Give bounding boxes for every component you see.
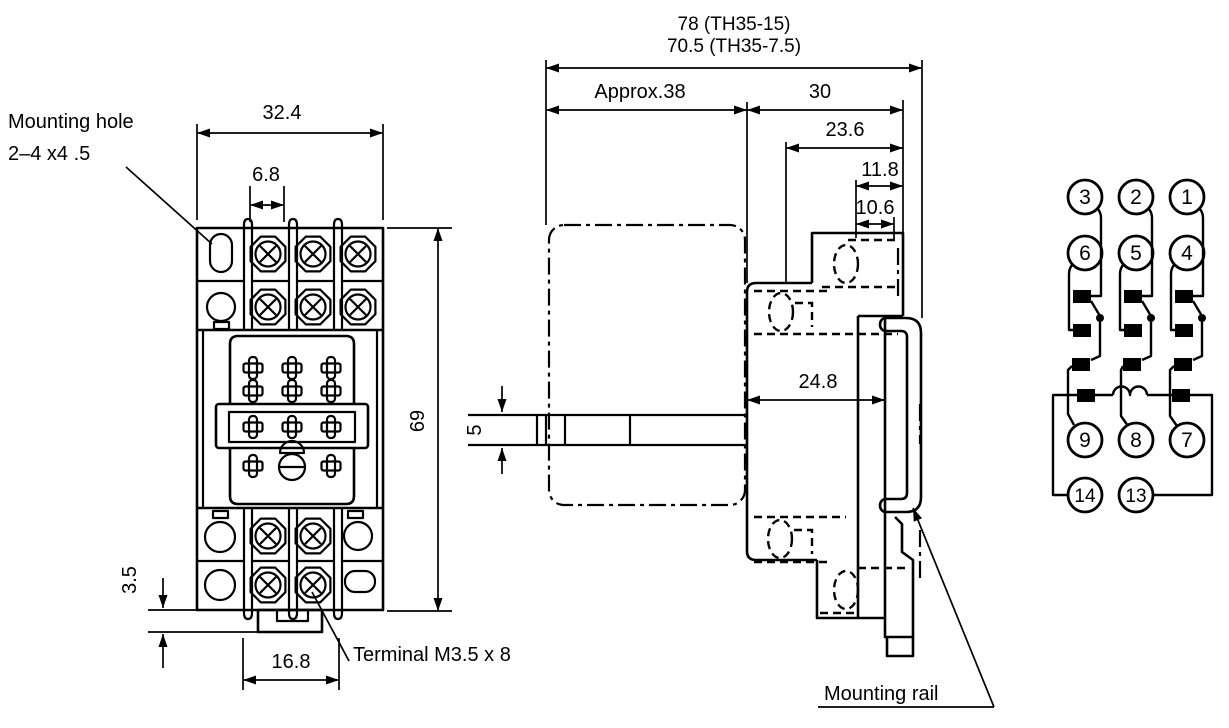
- wire-top-to-nc: [1193, 208, 1203, 296]
- plate-dividers: [537, 415, 630, 445]
- pin-hole: [283, 416, 302, 438]
- wire-pivot-to-common: [1142, 322, 1151, 360]
- mounting-hole-label-line2: 2–4 x4 .5: [8, 143, 90, 165]
- pin-hole: [322, 380, 341, 402]
- pin-hole: [283, 380, 302, 402]
- round-hole: [205, 570, 235, 600]
- pin-hole: [244, 357, 263, 379]
- round-hole: [207, 293, 235, 321]
- small-notch: [214, 322, 229, 329]
- contact-common: [1174, 358, 1192, 371]
- contact-nc: [1124, 290, 1142, 303]
- pivot-dot: [1147, 314, 1155, 322]
- oval-hole: [345, 571, 375, 592]
- pin-hole: [322, 357, 341, 379]
- contact-no: [1073, 324, 1091, 337]
- socket-front-face: [747, 283, 817, 560]
- dim-pitch-ext: [250, 186, 284, 222]
- side-view: 78 (TH35-15) 70.5 (TH35-7.5) Approx.38 3…: [464, 14, 994, 707]
- hidden-terminal-lines: [754, 517, 846, 562]
- coil-terminal-blade: [1077, 389, 1095, 402]
- contact-no: [1175, 324, 1193, 337]
- pin-number: 5: [1130, 242, 1142, 265]
- contact-no: [1124, 324, 1142, 337]
- screw-terminal: [251, 237, 286, 272]
- pin-number: 1: [1181, 186, 1193, 209]
- pivot-dot: [1096, 314, 1104, 322]
- dim-inner-width-text: 24.8: [799, 371, 838, 393]
- pin-number: 3: [1079, 186, 1091, 209]
- dim-bottom-offset-ext: [148, 610, 258, 632]
- pin-hole: [322, 455, 341, 477]
- round-hole: [205, 522, 235, 552]
- wire-pivot-to-common: [1193, 322, 1202, 360]
- technical-drawing-page: Mounting hole 2–4 x4 .5 32.4 6.8 69 3.5 …: [0, 0, 1229, 728]
- hidden-terminal-ellipse: [834, 571, 858, 609]
- armature: [1193, 301, 1202, 316]
- pin-number: 9: [1079, 429, 1091, 452]
- dim-socket-depth-text: 30: [809, 81, 831, 103]
- rail-label: Mounting rail: [824, 683, 939, 705]
- dim-height-text: 69: [407, 410, 429, 432]
- rail-outer: [886, 318, 921, 512]
- mounting-hole-leader: [126, 167, 212, 244]
- small-tab: [213, 511, 228, 518]
- coil-terminal-blade: [1172, 389, 1190, 402]
- front-view: Mounting hole 2–4 x4 .5 32.4 6.8 69 3.5 …: [8, 102, 511, 690]
- armature: [1091, 301, 1100, 316]
- contact-nc: [1175, 290, 1193, 303]
- screw-terminal: [296, 237, 331, 272]
- armature: [1142, 301, 1151, 316]
- hidden-terminal-lines: [820, 568, 908, 613]
- relay-socket-drawing: Mounting hole 2–4 x4 .5 32.4 6.8 69 3.5 …: [0, 0, 1229, 728]
- pin-hole: [283, 357, 302, 379]
- relay-plate: [468, 415, 747, 445]
- small-tab: [348, 511, 363, 518]
- terminal-label: Terminal M3.5 x 8: [353, 644, 511, 666]
- screw-terminal: [341, 237, 376, 272]
- mounting-hole-label-line1: Mounting hole: [8, 111, 134, 133]
- relay-body-phantom: [549, 225, 745, 505]
- dim-a-text: 23.6: [826, 119, 865, 141]
- socket-bottom-foot: [887, 637, 913, 656]
- pin-hole: [244, 416, 263, 438]
- screw-terminal: [251, 568, 286, 603]
- rail-leader: [913, 508, 994, 707]
- wire-top-to-nc: [1091, 208, 1101, 296]
- dim-width-ext: [197, 124, 383, 220]
- pin-diagram: 3 2 1 6 5 4 9 8 7 14 13: [1053, 180, 1212, 512]
- pin-hole: [244, 455, 263, 477]
- screw-terminal: [296, 519, 331, 554]
- pin-number: 8: [1130, 429, 1142, 452]
- pivot-dot: [1198, 314, 1206, 322]
- terminal-strip: [289, 508, 297, 619]
- dim-plate-text: 5: [464, 424, 486, 435]
- socket-top-claw: [812, 233, 903, 316]
- front-center-socket: [216, 336, 368, 504]
- socket-latch: [885, 517, 913, 637]
- pin-number: 6: [1079, 242, 1091, 265]
- pin-number: 2: [1130, 186, 1142, 209]
- dim-width-text: 32.4: [263, 102, 302, 124]
- dim-overall15-text: 78 (TH35-15): [678, 14, 791, 35]
- pin-number: 13: [1125, 486, 1146, 507]
- screw-terminal: [251, 519, 286, 554]
- terminal-leader: [312, 592, 349, 661]
- pin-number: 14: [1074, 486, 1096, 507]
- terminal-strip: [334, 508, 342, 619]
- hidden-terminal-ellipse: [834, 245, 858, 283]
- terminal-strip: [244, 508, 252, 619]
- plate-edges: [468, 415, 747, 445]
- hidden-terminal-ellipse: [768, 520, 792, 558]
- contact-nc: [1073, 290, 1091, 303]
- pin-hole: [322, 416, 341, 438]
- pin-number: 7: [1181, 429, 1193, 452]
- screw-terminal: [296, 290, 331, 325]
- side-dimensions: 78 (TH35-15) 70.5 (TH35-7.5) Approx.38 3…: [464, 14, 994, 707]
- pin-circles: 3 2 1 6 5 4 9 8 7 14 13: [1068, 180, 1204, 512]
- dim-tab-width-text: 16.8: [272, 651, 311, 673]
- screw-terminal: [251, 290, 286, 325]
- dim-relay-depth-text: Approx.38: [594, 81, 685, 103]
- wire-pivot-to-common: [1091, 322, 1100, 360]
- screw-terminal: [296, 568, 331, 603]
- dim-b-text: 11.8: [861, 159, 898, 181]
- dim-pitch-text: 6.8: [252, 164, 280, 186]
- socket-profile: [747, 233, 913, 656]
- dim-overall75-text: 70.5 (TH35-7.5): [667, 36, 801, 57]
- mounting-hole-oval: [210, 234, 232, 272]
- wire-top-to-nc: [1142, 208, 1152, 296]
- wire-common-to-8: [1121, 366, 1128, 426]
- dim-c-text: 10.6: [856, 197, 895, 219]
- pin-hole: [244, 380, 263, 402]
- round-hole: [344, 522, 372, 550]
- contact-common: [1072, 358, 1090, 371]
- coil-symbol: [1113, 387, 1147, 396]
- screw-terminal: [341, 290, 376, 325]
- hidden-terminal-ellipse: [769, 293, 793, 331]
- contact-common: [1123, 358, 1141, 371]
- hidden-terminal-lines: [822, 240, 900, 287]
- pin-number: 4: [1181, 242, 1193, 265]
- rail-inner: [886, 331, 907, 499]
- dim-bottom-offset-text: 3.5: [119, 566, 141, 594]
